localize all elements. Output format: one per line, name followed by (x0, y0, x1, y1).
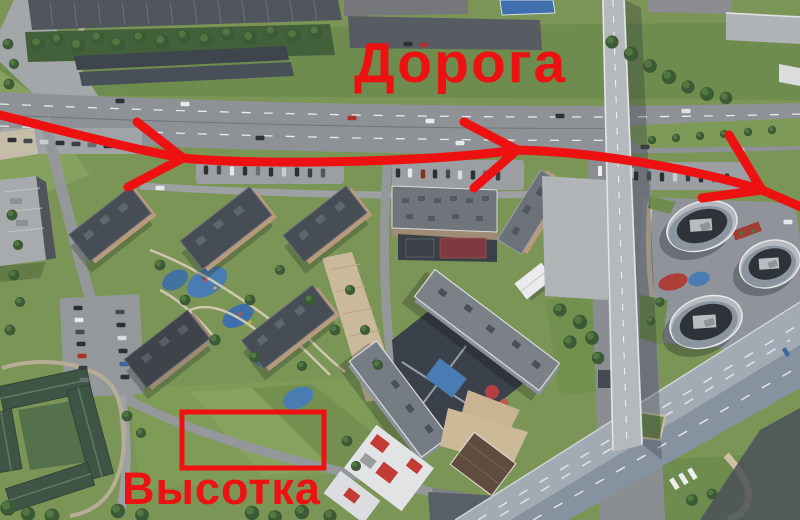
highrise-label: Высотка (122, 466, 321, 511)
road-arrow-shaft (0, 113, 800, 207)
highlight-rectangle (182, 412, 324, 468)
annotated-aerial-screenshot: Дорога Высотка (0, 0, 800, 520)
road-label: Дорога (354, 35, 567, 92)
road-arrow-head-3 (702, 135, 762, 198)
